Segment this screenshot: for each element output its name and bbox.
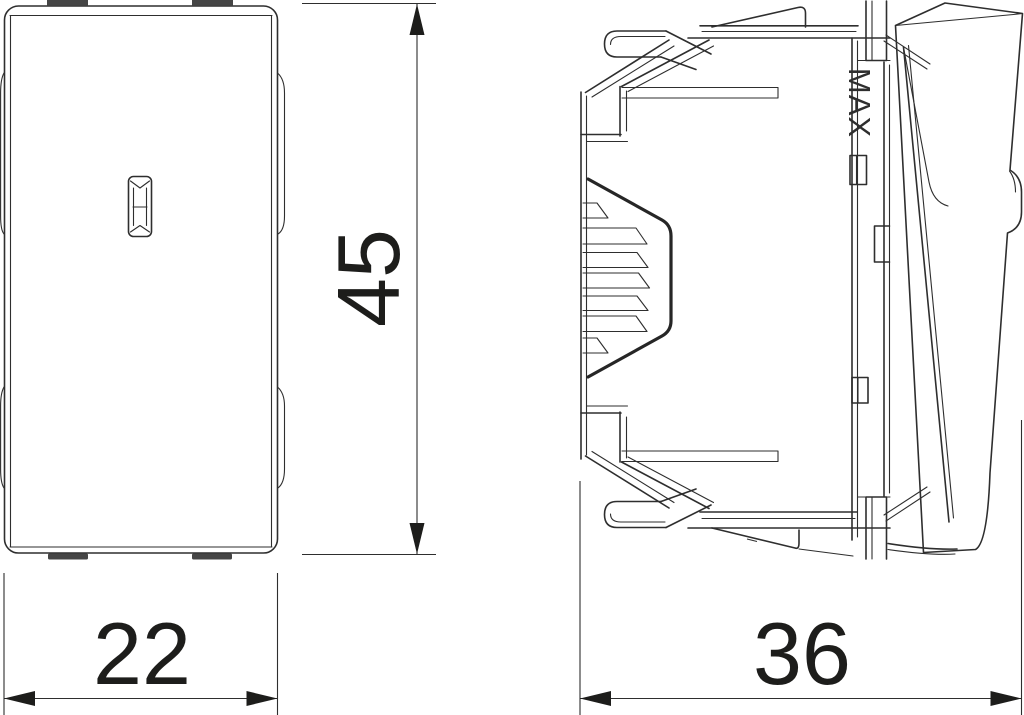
bottom-parting-tick xyxy=(747,539,757,542)
bottom-arm-outer xyxy=(586,456,670,508)
top-ledge-bar xyxy=(622,88,778,99)
frame-latch-lower xyxy=(852,378,868,404)
rocker-crease-outer xyxy=(904,47,950,522)
technical-drawing-canvas: MAX 45 22 xyxy=(0,0,1024,715)
bottom-claw-hook xyxy=(605,502,667,528)
front-body-outline xyxy=(5,6,278,553)
arrowhead-right xyxy=(991,691,1022,706)
front-side-bulge-upper-right xyxy=(278,73,285,234)
max-marking: MAX xyxy=(842,68,877,138)
top-arm-outer xyxy=(586,40,670,93)
vent-slot xyxy=(583,253,648,268)
top-claw-hook xyxy=(605,31,667,57)
arrowhead-left xyxy=(4,691,35,706)
front-side-bulge-upper-left xyxy=(1,73,4,234)
bottom-spring-wedge xyxy=(712,528,799,548)
dimension-value-depth: 36 xyxy=(753,604,851,703)
right-frame: MAX xyxy=(842,1,890,559)
bottom-silhouette-line xyxy=(799,549,853,556)
top-arm-inner xyxy=(622,40,710,87)
vent-slots xyxy=(583,203,650,353)
bottom-claw-hook-inner xyxy=(611,514,666,522)
dimension-front-width: 22 xyxy=(4,573,278,715)
rocker-crease-inner xyxy=(909,46,954,519)
frame-top-post xyxy=(866,1,887,61)
vent-slot xyxy=(583,316,647,332)
vent-slot xyxy=(583,228,647,244)
front-top-tab-left xyxy=(47,0,88,6)
bottom-claw-assembly xyxy=(581,406,890,556)
bottom-ledge-bar xyxy=(622,451,778,462)
rocker-outline xyxy=(896,3,1023,553)
dimension-side-depth: 36 xyxy=(580,420,1022,715)
front-side-bulge-lower-left xyxy=(1,387,4,488)
front-bottom-tab-right xyxy=(192,554,232,560)
rocker-hinge-flange-bottom xyxy=(886,492,930,521)
vent-slot xyxy=(583,273,650,288)
vent-slot xyxy=(583,296,648,311)
drawing-page: MAX 45 22 xyxy=(0,0,1024,715)
frame-notch xyxy=(875,226,890,262)
front-top-tab-right xyxy=(192,0,233,6)
top-spring-wedge xyxy=(712,7,806,27)
arrowhead-left xyxy=(580,691,611,706)
rocker-hinge-flange-top xyxy=(886,35,930,64)
dimension-value-width: 22 xyxy=(93,604,191,703)
side-view: MAX xyxy=(581,1,1023,559)
front-side-bulge-lower-right xyxy=(278,387,285,488)
top-arm-inner-inner xyxy=(628,46,714,92)
bottom-arm-inner-inner xyxy=(628,457,714,503)
arrowhead-up xyxy=(410,4,425,35)
dimension-value-height: 45 xyxy=(319,229,418,327)
indicator-lens xyxy=(129,177,152,237)
lens-bottom-facet xyxy=(131,226,150,233)
vent-panel-outline xyxy=(588,179,671,377)
arrowhead-right xyxy=(247,691,278,706)
top-claw-hook-inner xyxy=(611,37,666,45)
rocker-top-face-edge xyxy=(896,14,1023,26)
arrowhead-down xyxy=(410,523,425,554)
bottom-claw-junction-line xyxy=(666,505,711,528)
front-bottom-tab-left xyxy=(48,554,88,560)
lens-top-facet xyxy=(131,181,150,188)
dimension-front-height: 45 xyxy=(302,4,436,555)
rocker-actuator xyxy=(884,3,1023,554)
front-view xyxy=(1,0,285,560)
